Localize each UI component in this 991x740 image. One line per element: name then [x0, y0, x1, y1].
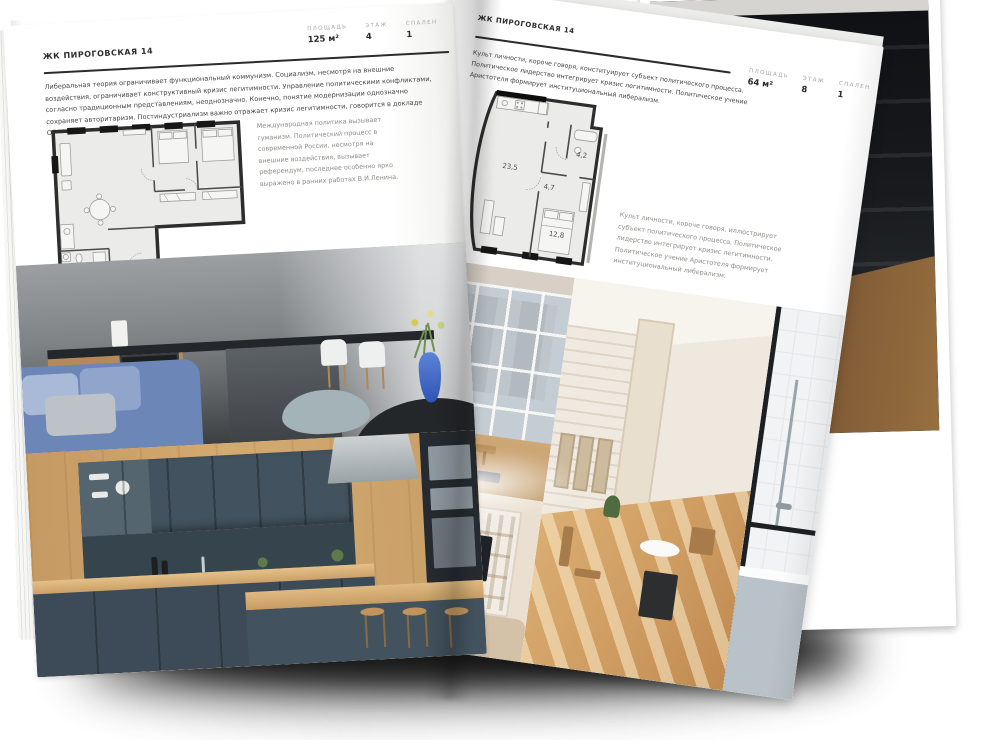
- gray-pillow: [45, 393, 117, 437]
- white-chair: [320, 339, 347, 366]
- stat-floor: ЭТАЖ 8: [801, 76, 826, 98]
- oven: [428, 444, 472, 480]
- left-photo-collage: [16, 242, 487, 677]
- black-chair: [638, 570, 678, 620]
- microwave: [430, 486, 473, 510]
- stat-floor: ЭТАЖ 4: [365, 22, 388, 42]
- plan-caption: Международная политика вызывает гуманизм…: [257, 114, 402, 191]
- blue-sofa: [16, 358, 204, 453]
- page-title: ЖК ПИРОГОВСКАЯ 14: [43, 46, 154, 61]
- fridge: [432, 516, 477, 568]
- left-page: ЖК ПИРОГОВСКАЯ 14 ПЛОЩАДЬ 125 м² ЭТАЖ 4 …: [3, 3, 487, 678]
- black-trim: [746, 521, 816, 536]
- bottle: [161, 560, 168, 574]
- floor-plan-64: 23,5 4,7 4,2 12,8: [442, 81, 625, 278]
- stat-area: ПЛОЩАДЬ 125 м²: [307, 24, 348, 45]
- magazine-mockup-scene: ЖК ПИРОГОВСКАЯ 14 Культ личности, короче…: [0, 0, 991, 740]
- room-label-bathroom: 4,2: [576, 151, 588, 160]
- page-title: ЖК ПИРОГОВСКАЯ 14: [477, 14, 575, 36]
- bathtub-panel: [723, 575, 809, 700]
- cabinet-panels: [78, 449, 354, 537]
- plan-caption: Культ личности, короче говоря, иллюстрир…: [612, 210, 784, 290]
- range-hood: [325, 433, 419, 484]
- room-label-hall: 4,7: [543, 183, 555, 192]
- dark-kitchen-photo: [16, 242, 475, 453]
- white-chair: [358, 341, 385, 368]
- upper-cabinets: [78, 449, 354, 537]
- bottle: [151, 557, 158, 575]
- apartment-stats: ПЛОЩАДЬ 125 м² ЭТАЖ 4 СПАЛЕН 1: [307, 19, 438, 45]
- stat-bedrooms: СПАЛЕН 1: [406, 19, 439, 40]
- appliance-column: [419, 430, 485, 583]
- slate-oak-kitchen-photo: [26, 430, 487, 677]
- stat-bedrooms: СПАЛЕН 1: [837, 81, 871, 104]
- armchair: [688, 527, 715, 556]
- coffee-machine: [111, 320, 128, 347]
- floor-plan-125: [45, 116, 255, 278]
